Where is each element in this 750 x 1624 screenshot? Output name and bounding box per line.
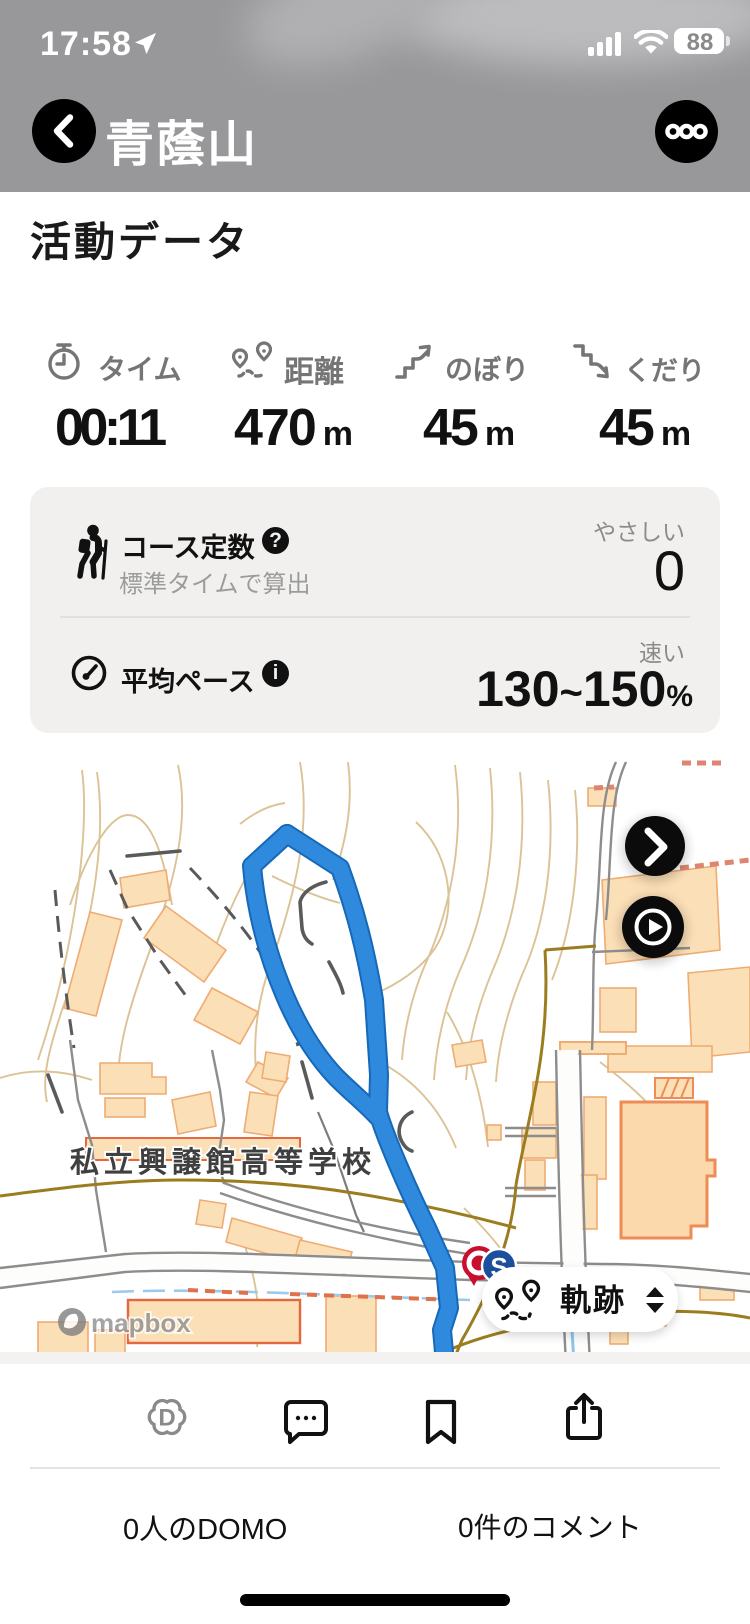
svg-text:D: D <box>158 1405 175 1432</box>
svg-text:mapbox: mapbox <box>91 1308 191 1338</box>
svg-text:軌跡: 軌跡 <box>560 1283 626 1318</box>
svg-text:私立興譲館高等学校: 私立興譲館高等学校 <box>70 1145 376 1179</box>
